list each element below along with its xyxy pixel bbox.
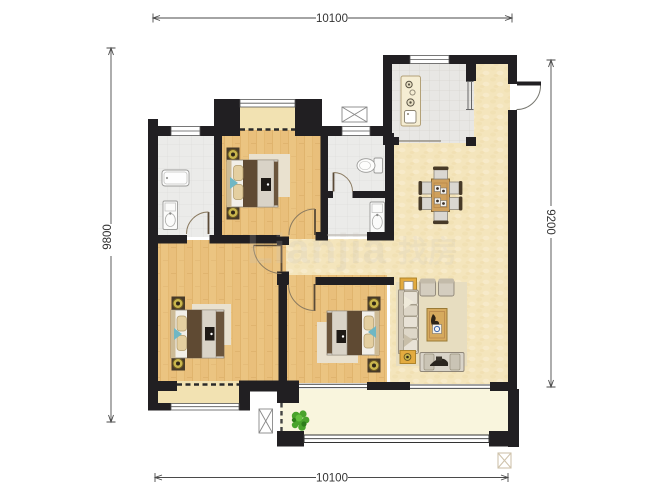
svg-text:9800: 9800 — [102, 224, 114, 250]
svg-text:找房: 找房 — [398, 236, 458, 269]
svg-text:Lianjia: Lianjia — [247, 225, 387, 272]
svg-text:10100: 10100 — [316, 13, 348, 25]
svg-text:10100: 10100 — [316, 473, 348, 485]
svg-text:9200: 9200 — [544, 209, 556, 235]
